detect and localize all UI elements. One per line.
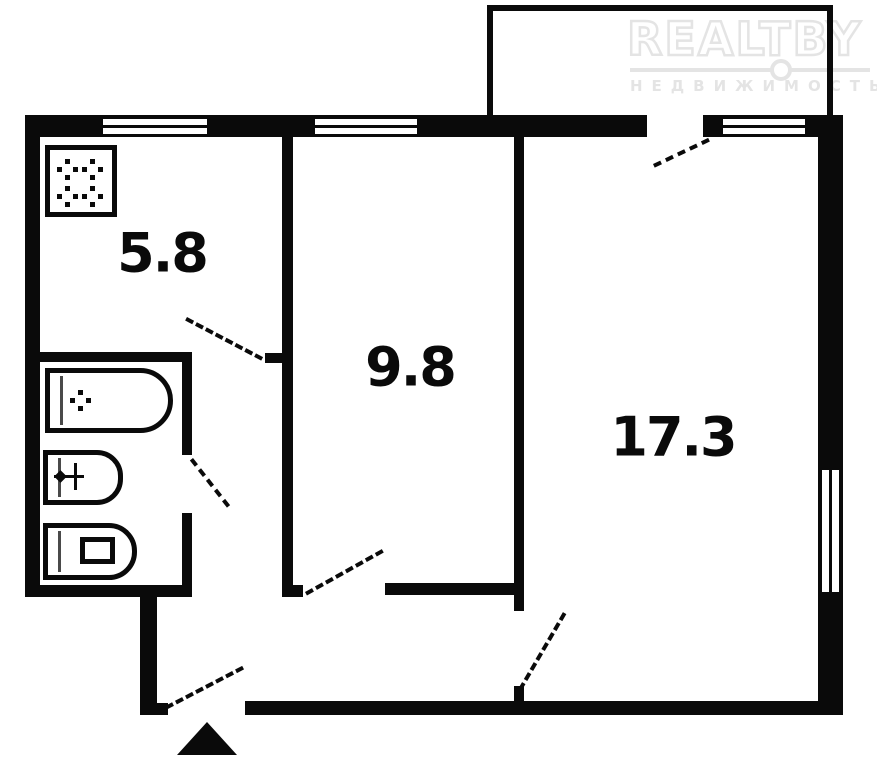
hallway-step-wall xyxy=(140,597,157,715)
entrance-door-swing-line xyxy=(165,666,244,710)
toilet-edge-line xyxy=(58,531,61,572)
bathroom-door-swing-line xyxy=(190,458,230,508)
room-label-bedroom: 9.8 xyxy=(365,336,455,399)
room-label-living-room: 17.3 xyxy=(610,406,735,469)
living-room-door-swing-line xyxy=(518,612,566,691)
hallway-step-wall-foot xyxy=(140,703,168,715)
living-room-window-line xyxy=(723,125,805,128)
kitchen-bedroom-divider-foot xyxy=(282,585,303,597)
bedroom-living-divider-wall xyxy=(514,137,524,611)
kitchen-window-line xyxy=(103,125,207,128)
kitchen-door-stub-wall xyxy=(265,353,293,363)
toilet-icon xyxy=(43,523,137,580)
stove-burner-icon xyxy=(90,167,95,172)
kitchen-door-swing-line xyxy=(185,317,263,361)
bathroom-right-wall-lower xyxy=(182,513,192,597)
floor-plan: REALT BY НЕДВИЖИМОСТЬ xyxy=(0,0,877,770)
bathtub-icon xyxy=(45,368,173,433)
room-label-kitchen: 5.8 xyxy=(117,222,207,285)
toilet-bowl-icon xyxy=(80,537,115,564)
bathtub-drain-icon xyxy=(78,398,83,403)
bathroom-top-wall xyxy=(37,352,192,362)
living-room-side-window xyxy=(822,470,839,592)
balcony-outline xyxy=(487,5,833,121)
stove-burner-icon xyxy=(90,194,95,199)
balcony-door-opening xyxy=(647,115,703,137)
outer-wall-bottom xyxy=(245,701,843,715)
bathtub-edge-line xyxy=(60,376,63,425)
sink-faucet-icon xyxy=(74,463,77,490)
stove-burner-icon xyxy=(65,167,70,172)
outer-wall-right xyxy=(818,115,843,715)
kitchen-window xyxy=(103,119,207,134)
living-room-side-window-line xyxy=(829,470,832,592)
living-room-window xyxy=(723,119,805,134)
sink-faucet-handle-icon xyxy=(54,470,67,483)
bathroom-right-wall-upper xyxy=(182,352,192,455)
stove-burner-icon xyxy=(65,194,70,199)
sink-icon xyxy=(43,450,123,505)
balcony-door-swing-line xyxy=(653,138,710,168)
kitchen-bedroom-divider-wall xyxy=(282,137,293,597)
stove-icon xyxy=(45,145,117,217)
bathroom-outer-bottom-wall xyxy=(25,585,192,597)
bedroom-bottom-wall xyxy=(385,583,524,595)
entrance-arrow-icon xyxy=(177,722,237,755)
bedroom-door-swing-line xyxy=(305,549,384,595)
bedroom-window-line xyxy=(315,125,417,128)
bedroom-window xyxy=(315,119,417,134)
